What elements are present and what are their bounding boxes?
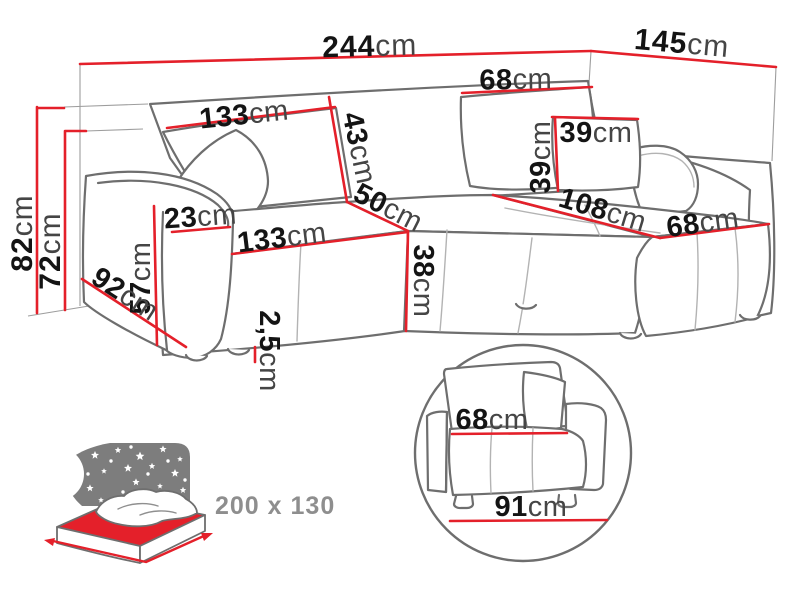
sleeping-function-icon: 200 x 130 xyxy=(30,443,335,563)
detail-total-depth-label: 91cm xyxy=(495,491,568,523)
bed-icon xyxy=(44,489,213,563)
sofa-dimension-diagram-page: 244cm 145cm 133cm 68cm 43cm 39cm 39cm 82… xyxy=(0,0,800,600)
dim-seat-height-label: 38cm xyxy=(407,245,439,318)
dim-armrest-width-label: 23cm xyxy=(163,199,238,236)
dim-cushion-width-label: 39cm xyxy=(560,117,633,149)
bed-size-label: 200 x 130 xyxy=(215,492,335,520)
dim-leg-height-label: 2,5cm xyxy=(253,310,285,392)
corner-sofa-drawing: 244cm 145cm 133cm 68cm 43cm 39cm 39cm 82… xyxy=(0,0,800,600)
moon-icon xyxy=(30,447,84,501)
detail-circle: 68cm 91cm xyxy=(415,345,631,561)
dim-cushion-height-label: 39cm xyxy=(525,121,557,194)
dim-frame-height-label: 72cm xyxy=(34,212,67,289)
dim-backrest-right-label: 68cm xyxy=(479,63,552,96)
dim-total-depth-label: 145cm xyxy=(633,23,731,64)
dim-total-width-label: 244cm xyxy=(322,29,418,64)
detail-seat-depth-label: 68cm xyxy=(456,404,529,436)
